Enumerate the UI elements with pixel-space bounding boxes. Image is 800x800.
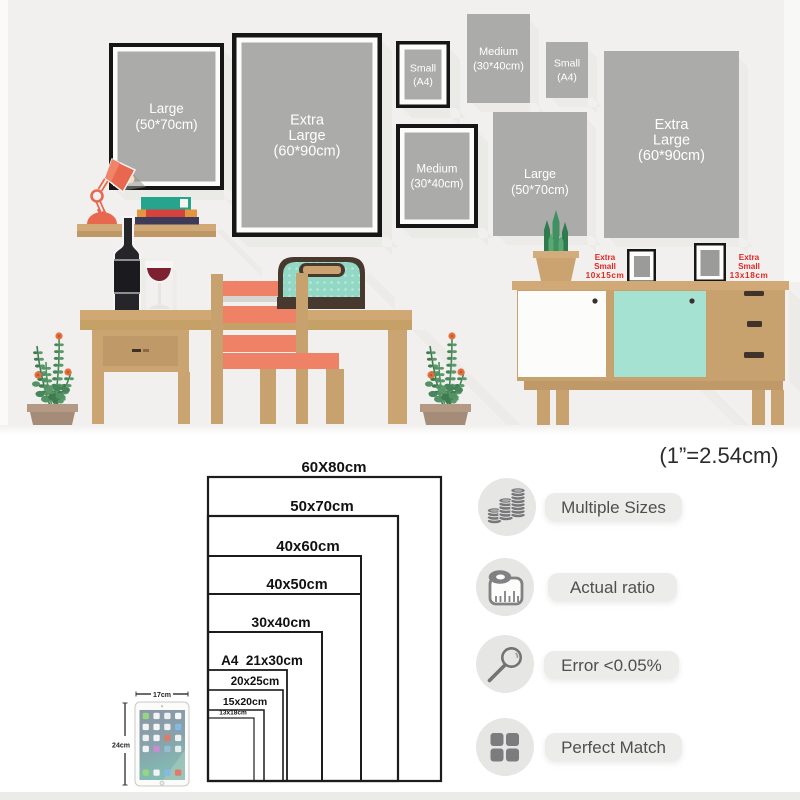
svg-text:Extra: Extra — [290, 113, 325, 129]
svg-text:Extra: Extra — [655, 117, 690, 133]
svg-text:13x18cm: 13x18cm — [730, 271, 769, 280]
svg-text:A4 21x30cm: A4 21x30cm — [221, 653, 303, 668]
svg-text:Small: Small — [410, 62, 436, 74]
svg-text:Small: Small — [738, 262, 760, 271]
svg-text:60X80cm: 60X80cm — [301, 459, 366, 476]
svg-text:13x18cm: 13x18cm — [219, 710, 247, 717]
svg-text:10x15cm: 10x15cm — [586, 271, 625, 280]
svg-text:Actual ratio: Actual ratio — [570, 578, 655, 597]
svg-text:(A4): (A4) — [557, 72, 577, 84]
svg-text:(60*90cm): (60*90cm) — [274, 144, 341, 160]
svg-text:Large: Large — [653, 133, 690, 149]
svg-text:Perfect Match: Perfect Match — [561, 738, 666, 757]
svg-text:(60*90cm): (60*90cm) — [638, 148, 705, 164]
svg-text:Multiple Sizes: Multiple Sizes — [561, 498, 666, 517]
svg-text:Large: Large — [149, 101, 184, 116]
svg-text:40x50cm: 40x50cm — [266, 577, 327, 593]
svg-text:15x20cm: 15x20cm — [223, 696, 267, 708]
svg-text:Extra: Extra — [595, 253, 616, 262]
svg-text:Small: Small — [594, 262, 616, 271]
svg-text:Extra: Extra — [739, 253, 760, 262]
svg-text:Medium: Medium — [417, 164, 458, 176]
svg-text:Small: Small — [554, 58, 580, 70]
svg-text:(A4): (A4) — [413, 76, 433, 88]
svg-text:(30*40cm): (30*40cm) — [410, 179, 463, 191]
svg-text:(50*70cm): (50*70cm) — [135, 117, 197, 132]
svg-text:Large: Large — [524, 167, 556, 181]
svg-text:Medium: Medium — [479, 46, 518, 58]
svg-text:Error <0.05%: Error <0.05% — [561, 656, 662, 675]
svg-text:17cm: 17cm — [153, 692, 171, 699]
svg-text:(1”=2.54cm): (1”=2.54cm) — [659, 443, 778, 468]
svg-text:50x70cm: 50x70cm — [290, 498, 353, 515]
svg-text:24cm: 24cm — [112, 743, 130, 750]
svg-text:30x40cm: 30x40cm — [251, 614, 310, 630]
svg-text:40x60cm: 40x60cm — [276, 538, 339, 555]
svg-text:Large: Large — [288, 128, 325, 144]
svg-text:(30*40cm): (30*40cm) — [473, 61, 524, 73]
svg-text:20x25cm: 20x25cm — [231, 676, 280, 688]
svg-text:(50*70cm): (50*70cm) — [511, 183, 569, 197]
